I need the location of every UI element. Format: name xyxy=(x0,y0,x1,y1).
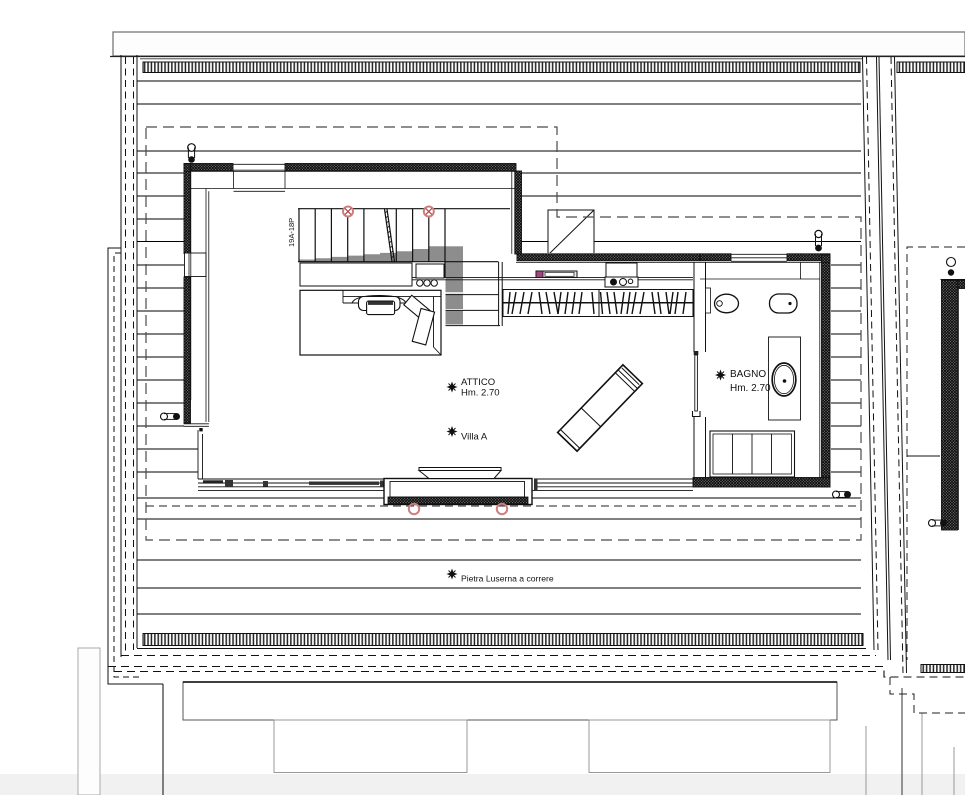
svg-text:Hm. 2.70: Hm. 2.70 xyxy=(730,383,771,394)
svg-text:Hm. 2.70: Hm. 2.70 xyxy=(461,388,500,399)
svg-text:BAGNO: BAGNO xyxy=(730,369,766,380)
svg-text:Villa A: Villa A xyxy=(461,432,488,443)
svg-text:19A-18P: 19A-18P xyxy=(287,218,296,247)
svg-text:Pietra Luserna a correre: Pietra Luserna a correre xyxy=(461,574,554,584)
svg-text:ATTICO: ATTICO xyxy=(461,377,495,388)
